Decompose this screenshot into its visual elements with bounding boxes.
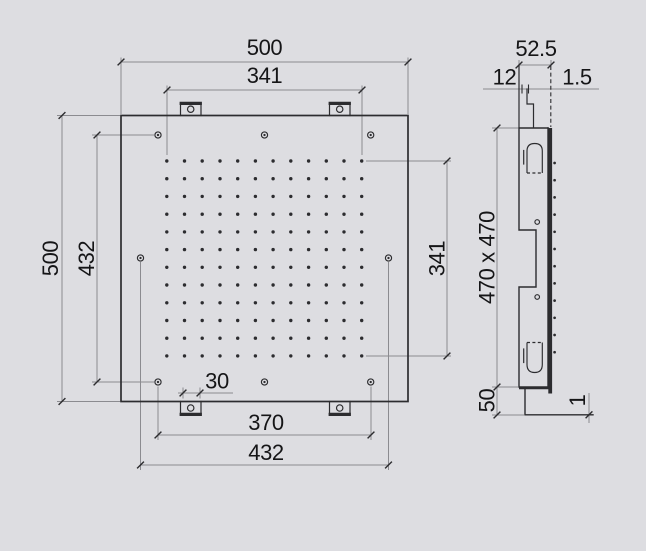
nozzle-dot <box>183 301 186 304</box>
nozzle-dot <box>342 283 345 286</box>
side-view <box>519 65 593 415</box>
nozzle-dot <box>165 319 168 322</box>
nozzle-dot <box>307 177 310 180</box>
nozzle-dot <box>165 177 168 180</box>
nozzle-dot <box>236 354 239 357</box>
dim-label-outer-height: 500 <box>38 241 63 277</box>
nozzle-dot <box>201 283 204 286</box>
side-nozzle-dot <box>553 179 556 182</box>
nozzle-dot <box>236 213 239 216</box>
nozzle-dot <box>201 195 204 198</box>
nozzle-dot <box>254 159 257 162</box>
tab-hole <box>337 106 343 112</box>
nozzle-dot <box>325 337 328 340</box>
nozzle-dot <box>201 213 204 216</box>
side-nozzle-dot <box>553 316 556 319</box>
technical-drawing-shower-panel: 500 341 500 432 341 30 370 432 52.5 12 1… <box>0 0 646 551</box>
nozzle-dot <box>307 337 310 340</box>
fixing-hole-center <box>263 381 265 383</box>
dim-label-fixing-pitch-horizontal: 432 <box>248 440 284 465</box>
nozzle-dot <box>342 230 345 233</box>
nozzle-dot <box>218 213 221 216</box>
nozzle-dot <box>201 230 204 233</box>
fixing-hole-center <box>387 257 389 259</box>
dim-label-bracket-depth: 12 <box>493 65 517 90</box>
nozzle-dot <box>271 266 274 269</box>
nozzle-dot <box>218 337 221 340</box>
nozzle-dot <box>360 230 363 233</box>
nozzle-dot <box>218 354 221 357</box>
dimension-lines <box>57 58 599 471</box>
nozzle-dot <box>254 230 257 233</box>
fixing-hole-center <box>139 257 141 259</box>
nozzle-dot <box>201 354 204 357</box>
nozzle-dot <box>218 177 221 180</box>
nozzle-dot <box>201 337 204 340</box>
dim-label-nozzle-field-height: 341 <box>425 241 450 277</box>
nozzle-dot <box>271 301 274 304</box>
dim-label-collar-height: 50 <box>475 389 500 413</box>
nozzle-dot <box>236 159 239 162</box>
nozzle-dot <box>183 230 186 233</box>
nozzle-dot <box>289 213 292 216</box>
nozzle-dot <box>307 319 310 322</box>
nozzle-dot <box>236 337 239 340</box>
side-nozzle-dot <box>553 248 556 251</box>
nozzle-dot <box>218 159 221 162</box>
nozzle-dot <box>254 195 257 198</box>
nozzle-dot <box>183 266 186 269</box>
nozzle-dot <box>342 354 345 357</box>
nozzle-dot <box>271 195 274 198</box>
fixing-hole-center <box>157 381 159 383</box>
mounting-tab-bottom-right <box>329 402 351 415</box>
nozzle-dot <box>325 195 328 198</box>
nozzle-dot <box>360 266 363 269</box>
nozzle-dot <box>289 301 292 304</box>
nozzle-dot <box>165 283 168 286</box>
dim-label-housing-size: 470 x 470 <box>475 211 500 304</box>
nozzle-dot <box>325 283 328 286</box>
side-nozzle-dot <box>553 334 556 337</box>
nozzle-dot <box>360 177 363 180</box>
nozzle-dot <box>289 283 292 286</box>
side-nozzle-dot <box>553 282 556 285</box>
nozzle-dot <box>201 177 204 180</box>
side-fixing-hole <box>535 220 540 225</box>
nozzle-dot <box>325 159 328 162</box>
nozzle-dot <box>289 354 292 357</box>
nozzle-dot <box>325 266 328 269</box>
nozzle-dot <box>201 301 204 304</box>
dim-label-plate-thickness: 1 <box>565 394 590 406</box>
nozzle-dot <box>360 159 363 162</box>
nozzle-dot <box>289 266 292 269</box>
fixing-hole-center <box>370 134 372 136</box>
nozzle-dot <box>183 337 186 340</box>
nozzle-dot <box>183 283 186 286</box>
nozzle-dot <box>183 159 186 162</box>
nozzle-dot <box>360 195 363 198</box>
panel-outline <box>121 116 408 402</box>
nozzle-dot <box>201 159 204 162</box>
nozzle-dot <box>289 195 292 198</box>
nozzle-dot <box>271 230 274 233</box>
nozzle-dot <box>218 195 221 198</box>
nozzle-dot <box>183 319 186 322</box>
nozzle-dot <box>236 301 239 304</box>
bracket-hook <box>527 89 534 127</box>
nozzle-dot <box>307 213 310 216</box>
nozzle-dot <box>218 230 221 233</box>
nozzle-dot <box>342 337 345 340</box>
nozzle-dot <box>201 266 204 269</box>
mounting-tab-top-left <box>180 103 202 115</box>
side-nozzle-dot <box>553 213 556 216</box>
nozzle-dot <box>271 159 274 162</box>
nozzle-dot <box>360 248 363 251</box>
nozzle-dot <box>360 354 363 357</box>
nozzle-dot <box>218 266 221 269</box>
mounting-tab-top-right <box>329 103 351 115</box>
nozzle-dot <box>218 301 221 304</box>
nozzle-dot <box>165 230 168 233</box>
nozzle-dot <box>360 337 363 340</box>
nozzle-dot <box>165 337 168 340</box>
nozzle-dot <box>165 301 168 304</box>
keyhole-slot-bottom <box>524 343 543 373</box>
nozzle-dot <box>236 266 239 269</box>
nozzle-dot <box>342 248 345 251</box>
nozzle-dot <box>342 177 345 180</box>
nozzle-dot <box>360 213 363 216</box>
nozzle-dot <box>271 337 274 340</box>
nozzle-dot <box>360 319 363 322</box>
nozzle-dot <box>289 337 292 340</box>
nozzle-dot <box>307 283 310 286</box>
nozzle-dot <box>307 159 310 162</box>
nozzle-dot <box>236 283 239 286</box>
nozzle-dot <box>325 213 328 216</box>
nozzle-dot <box>271 354 274 357</box>
dim-label-plate-gap: 1.5 <box>562 65 592 90</box>
nozzle-dot <box>342 266 345 269</box>
nozzle-dot <box>183 177 186 180</box>
nozzle-dot <box>271 248 274 251</box>
nozzle-dot <box>254 177 257 180</box>
nozzle-dot <box>183 354 186 357</box>
nozzle-dot <box>342 213 345 216</box>
keyhole-slot-top <box>524 144 543 174</box>
nozzle-dot <box>165 213 168 216</box>
dim-label-fixing-pitch-vertical: 432 <box>74 241 99 277</box>
nozzle-dot <box>289 177 292 180</box>
nozzle-dot <box>254 301 257 304</box>
side-nozzle-dot <box>553 230 556 233</box>
dimension-ticks <box>59 59 593 469</box>
fixing-holes <box>137 132 391 385</box>
fixing-hole-center <box>157 134 159 136</box>
nozzle-dot <box>342 195 345 198</box>
fixing-hole-center <box>263 134 265 136</box>
side-nozzle-dot <box>553 299 556 302</box>
nozzle-dot <box>325 230 328 233</box>
nozzle-dot <box>307 266 310 269</box>
nozzle-dot <box>165 195 168 198</box>
nozzle-dot <box>254 354 257 357</box>
nozzle-dot <box>254 248 257 251</box>
nozzle-dot <box>307 195 310 198</box>
side-nozzle-dot <box>553 265 556 268</box>
side-nozzle-dots <box>553 162 556 354</box>
tab-hole <box>337 405 343 411</box>
fixing-hole-center <box>370 381 372 383</box>
nozzle-dot <box>271 283 274 286</box>
nozzle-dot <box>165 248 168 251</box>
side-nozzle-dot <box>553 351 556 354</box>
nozzle-dot <box>254 283 257 286</box>
nozzle-dot <box>325 319 328 322</box>
nozzle-grid <box>165 159 363 357</box>
nozzle-dot <box>183 195 186 198</box>
nozzle-dot <box>360 283 363 286</box>
nozzle-dot <box>289 230 292 233</box>
nozzle-dot <box>289 319 292 322</box>
nozzle-dot <box>360 301 363 304</box>
nozzle-dot <box>218 319 221 322</box>
nozzle-dot <box>236 195 239 198</box>
dim-label-bracket-width: 30 <box>205 369 229 394</box>
nozzle-dot <box>325 248 328 251</box>
nozzle-dot <box>289 248 292 251</box>
nozzle-dot <box>165 159 168 162</box>
dim-label-outer-width: 500 <box>247 35 283 60</box>
nozzle-dot <box>201 319 204 322</box>
nozzle-dot <box>342 319 345 322</box>
nozzle-dot <box>201 248 204 251</box>
nozzle-dot <box>254 213 257 216</box>
mounting-tab-bottom-left <box>180 402 202 415</box>
nozzle-dot <box>307 230 310 233</box>
nozzle-dot <box>342 159 345 162</box>
nozzle-dot <box>236 248 239 251</box>
tab-hole <box>188 106 194 112</box>
nozzle-dot <box>236 319 239 322</box>
nozzle-dot <box>307 354 310 357</box>
nozzle-dot <box>236 177 239 180</box>
nozzle-dot <box>271 319 274 322</box>
nozzle-dot <box>254 319 257 322</box>
face-plate <box>548 128 552 394</box>
nozzle-dot <box>165 266 168 269</box>
dim-label-bracket-hole-pitch: 370 <box>248 410 284 435</box>
nozzle-dot <box>254 337 257 340</box>
side-nozzle-dot <box>553 162 556 165</box>
nozzle-dot <box>325 354 328 357</box>
nozzle-dot <box>183 213 186 216</box>
nozzle-dot <box>183 248 186 251</box>
nozzle-dot <box>325 177 328 180</box>
nozzle-dot <box>342 301 345 304</box>
side-fixing-hole <box>535 295 540 300</box>
side-nozzle-dot <box>553 196 556 199</box>
tab-hole <box>188 405 194 411</box>
nozzle-dot <box>218 283 221 286</box>
nozzle-dot <box>307 248 310 251</box>
nozzle-dot <box>218 248 221 251</box>
nozzle-dot <box>165 354 168 357</box>
nozzle-dot <box>271 177 274 180</box>
nozzle-dot <box>254 266 257 269</box>
nozzle-dot <box>236 230 239 233</box>
front-view <box>121 103 408 414</box>
nozzle-dot <box>289 159 292 162</box>
dim-label-nozzle-field-width: 341 <box>247 63 283 88</box>
housing-outline <box>519 128 548 387</box>
nozzle-dot <box>325 301 328 304</box>
dim-label-total-depth: 52.5 <box>515 36 556 61</box>
nozzle-dot <box>307 301 310 304</box>
nozzle-dot <box>271 213 274 216</box>
